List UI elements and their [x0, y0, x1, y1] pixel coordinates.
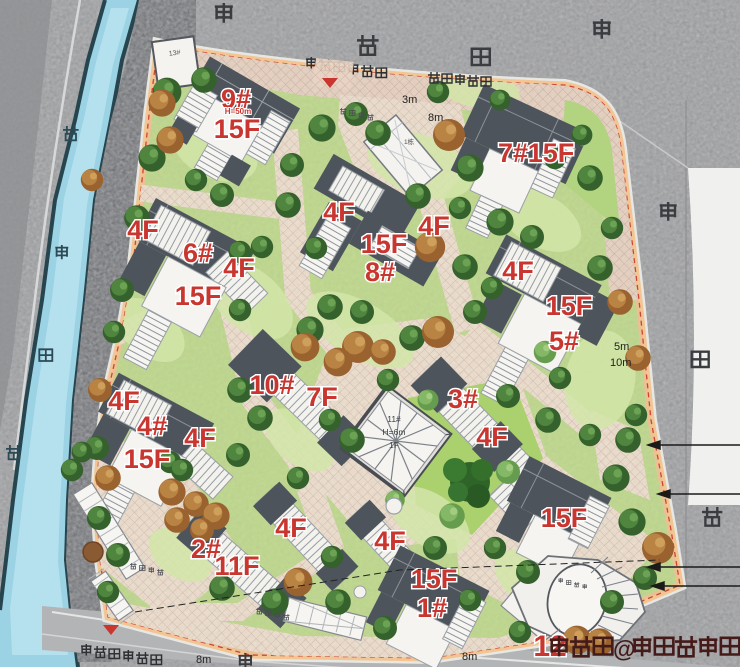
svg-text:1栋: 1栋 — [404, 137, 415, 146]
svg-text:4F: 4F — [184, 423, 216, 453]
svg-text:5m: 5m — [614, 341, 629, 353]
svg-text:4F: 4F — [418, 211, 450, 241]
svg-text:6#: 6# — [183, 238, 213, 268]
svg-text:@: @ — [613, 636, 635, 662]
svg-text:7F: 7F — [306, 382, 338, 412]
svg-text:10#: 10# — [249, 370, 294, 400]
svg-text:4F: 4F — [275, 513, 307, 543]
svg-text:8m: 8m — [462, 651, 477, 663]
svg-text:1F: 1F — [389, 440, 399, 450]
svg-text:5#: 5# — [549, 326, 579, 356]
svg-text:4F: 4F — [108, 386, 140, 416]
svg-text:10m: 10m — [610, 357, 631, 369]
svg-text:4F: 4F — [502, 256, 534, 286]
svg-text:4F: 4F — [223, 253, 255, 283]
svg-text:4F: 4F — [476, 422, 508, 452]
svg-text:15F: 15F — [541, 503, 588, 533]
svg-text:15F: 15F — [361, 229, 408, 259]
svg-text:8m: 8m — [196, 654, 211, 666]
svg-text:3#: 3# — [448, 384, 478, 414]
svg-text:15F: 15F — [124, 444, 171, 474]
svg-text:3m: 3m — [402, 94, 417, 106]
svg-text:15F: 15F — [175, 281, 222, 311]
svg-text:8#: 8# — [365, 257, 395, 287]
svg-text:15F: 15F — [528, 138, 575, 168]
svg-text:4#: 4# — [137, 411, 167, 441]
svg-text:4F: 4F — [127, 215, 159, 245]
svg-text:11F: 11F — [214, 551, 259, 581]
svg-text:7#: 7# — [498, 138, 528, 168]
svg-text:4F: 4F — [323, 197, 355, 227]
svg-text:4F: 4F — [374, 526, 406, 556]
svg-text:11#: 11# — [387, 414, 401, 424]
svg-text:H=50m: H=50m — [225, 107, 251, 116]
svg-text:8m: 8m — [428, 112, 443, 124]
svg-text:H=6m: H=6m — [383, 427, 406, 437]
svg-text:15F: 15F — [214, 114, 261, 144]
svg-text:15F: 15F — [546, 291, 593, 321]
svg-text:1#: 1# — [417, 593, 447, 623]
